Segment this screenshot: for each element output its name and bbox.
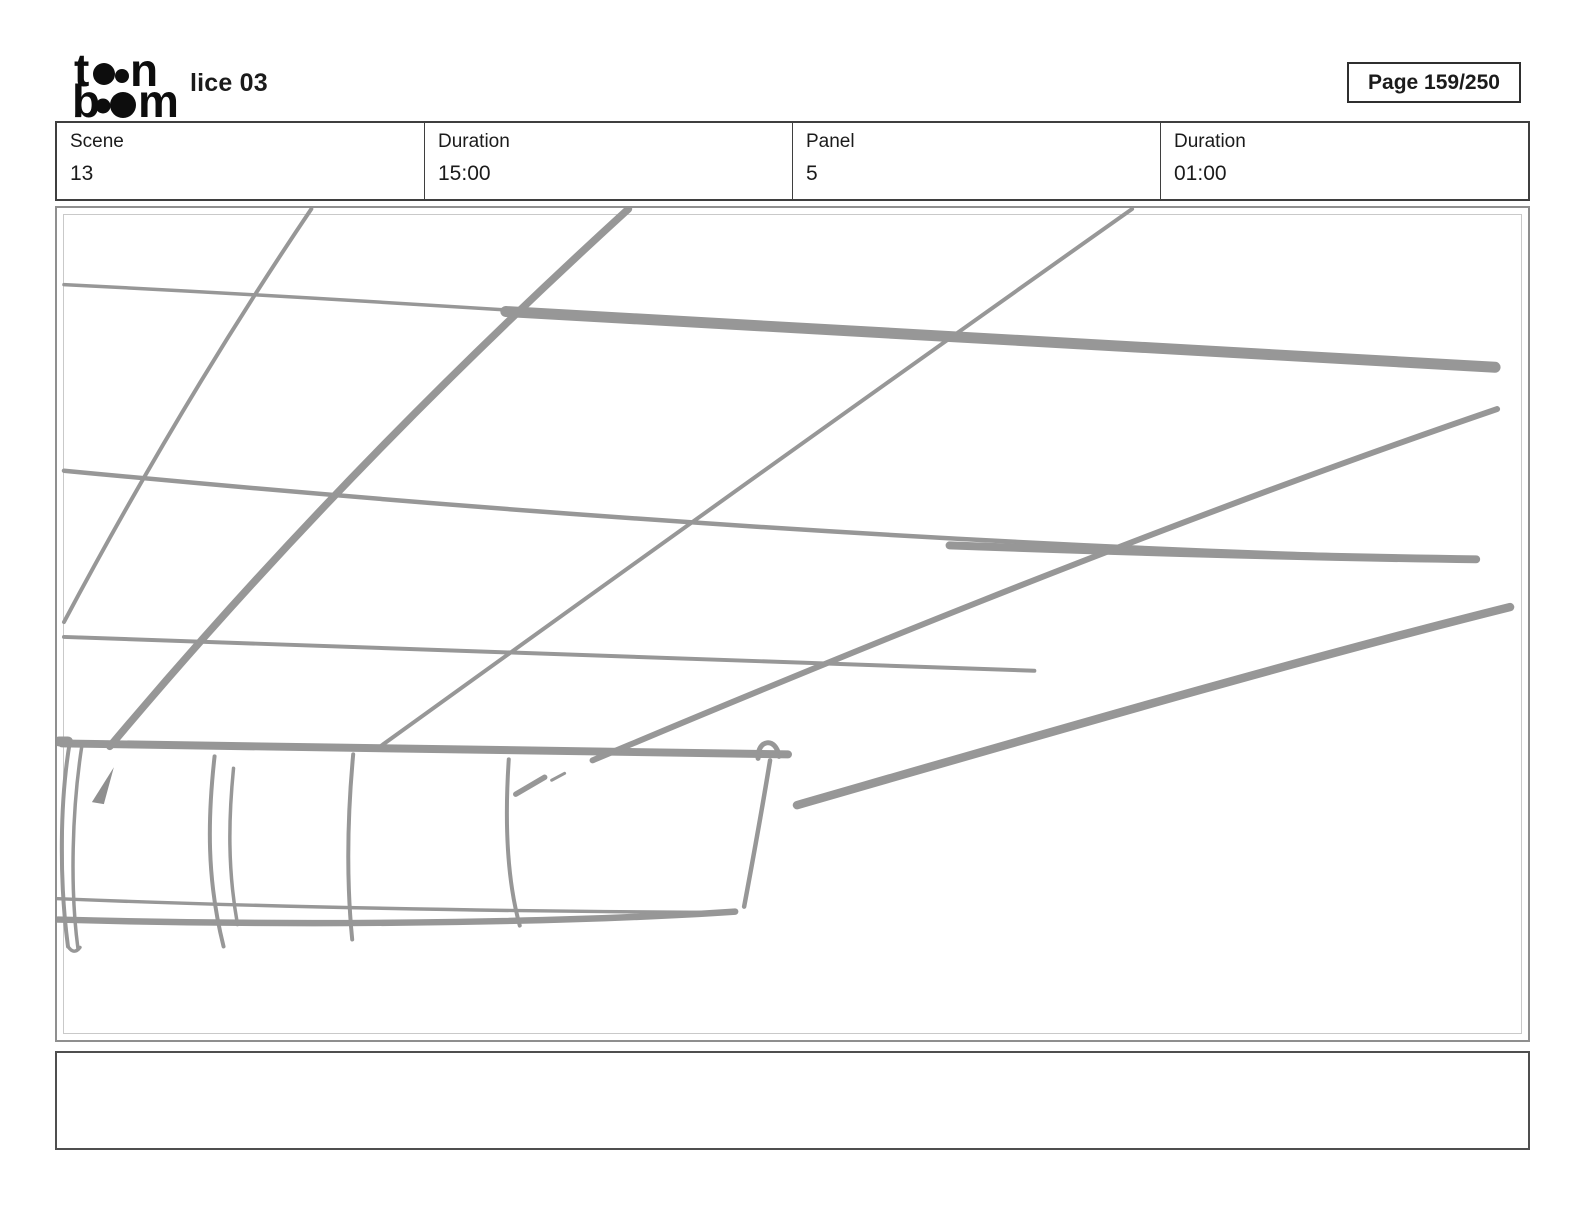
panel-duration-value: 01:00 [1174,161,1528,187]
page-number-badge: Page 159/250 [1347,62,1521,103]
panel-label: Panel [806,130,1160,154]
panel-sketch [57,208,1528,1040]
scene-value: 13 [70,161,424,187]
project-title: lice 03 [190,69,268,98]
scene-duration-label: Duration [438,130,792,154]
toonboom-logo: tnbm [72,46,184,118]
scene-label: Scene [70,130,424,154]
info-cell-scene: Scene 13 [57,123,425,199]
panel-value: 5 [806,161,1160,187]
info-cell-scene-duration: Duration 15:00 [425,123,793,199]
svg-text:b: b [72,75,100,118]
caption-box [55,1051,1530,1150]
svg-text:m: m [138,75,179,118]
storyboard-panel [55,206,1530,1042]
info-cell-panel-duration: Duration 01:00 [1161,123,1528,199]
page-number-text: Page 159/250 [1368,71,1500,95]
panel-duration-label: Duration [1174,130,1528,154]
scene-duration-value: 15:00 [438,161,792,187]
info-cell-panel: Panel 5 [793,123,1161,199]
storyboard-page: { "header": { "title": "lice 03", "page_… [0,0,1584,1224]
panel-info-table: Scene 13 Duration 15:00 Panel 5 Duration… [55,121,1530,201]
